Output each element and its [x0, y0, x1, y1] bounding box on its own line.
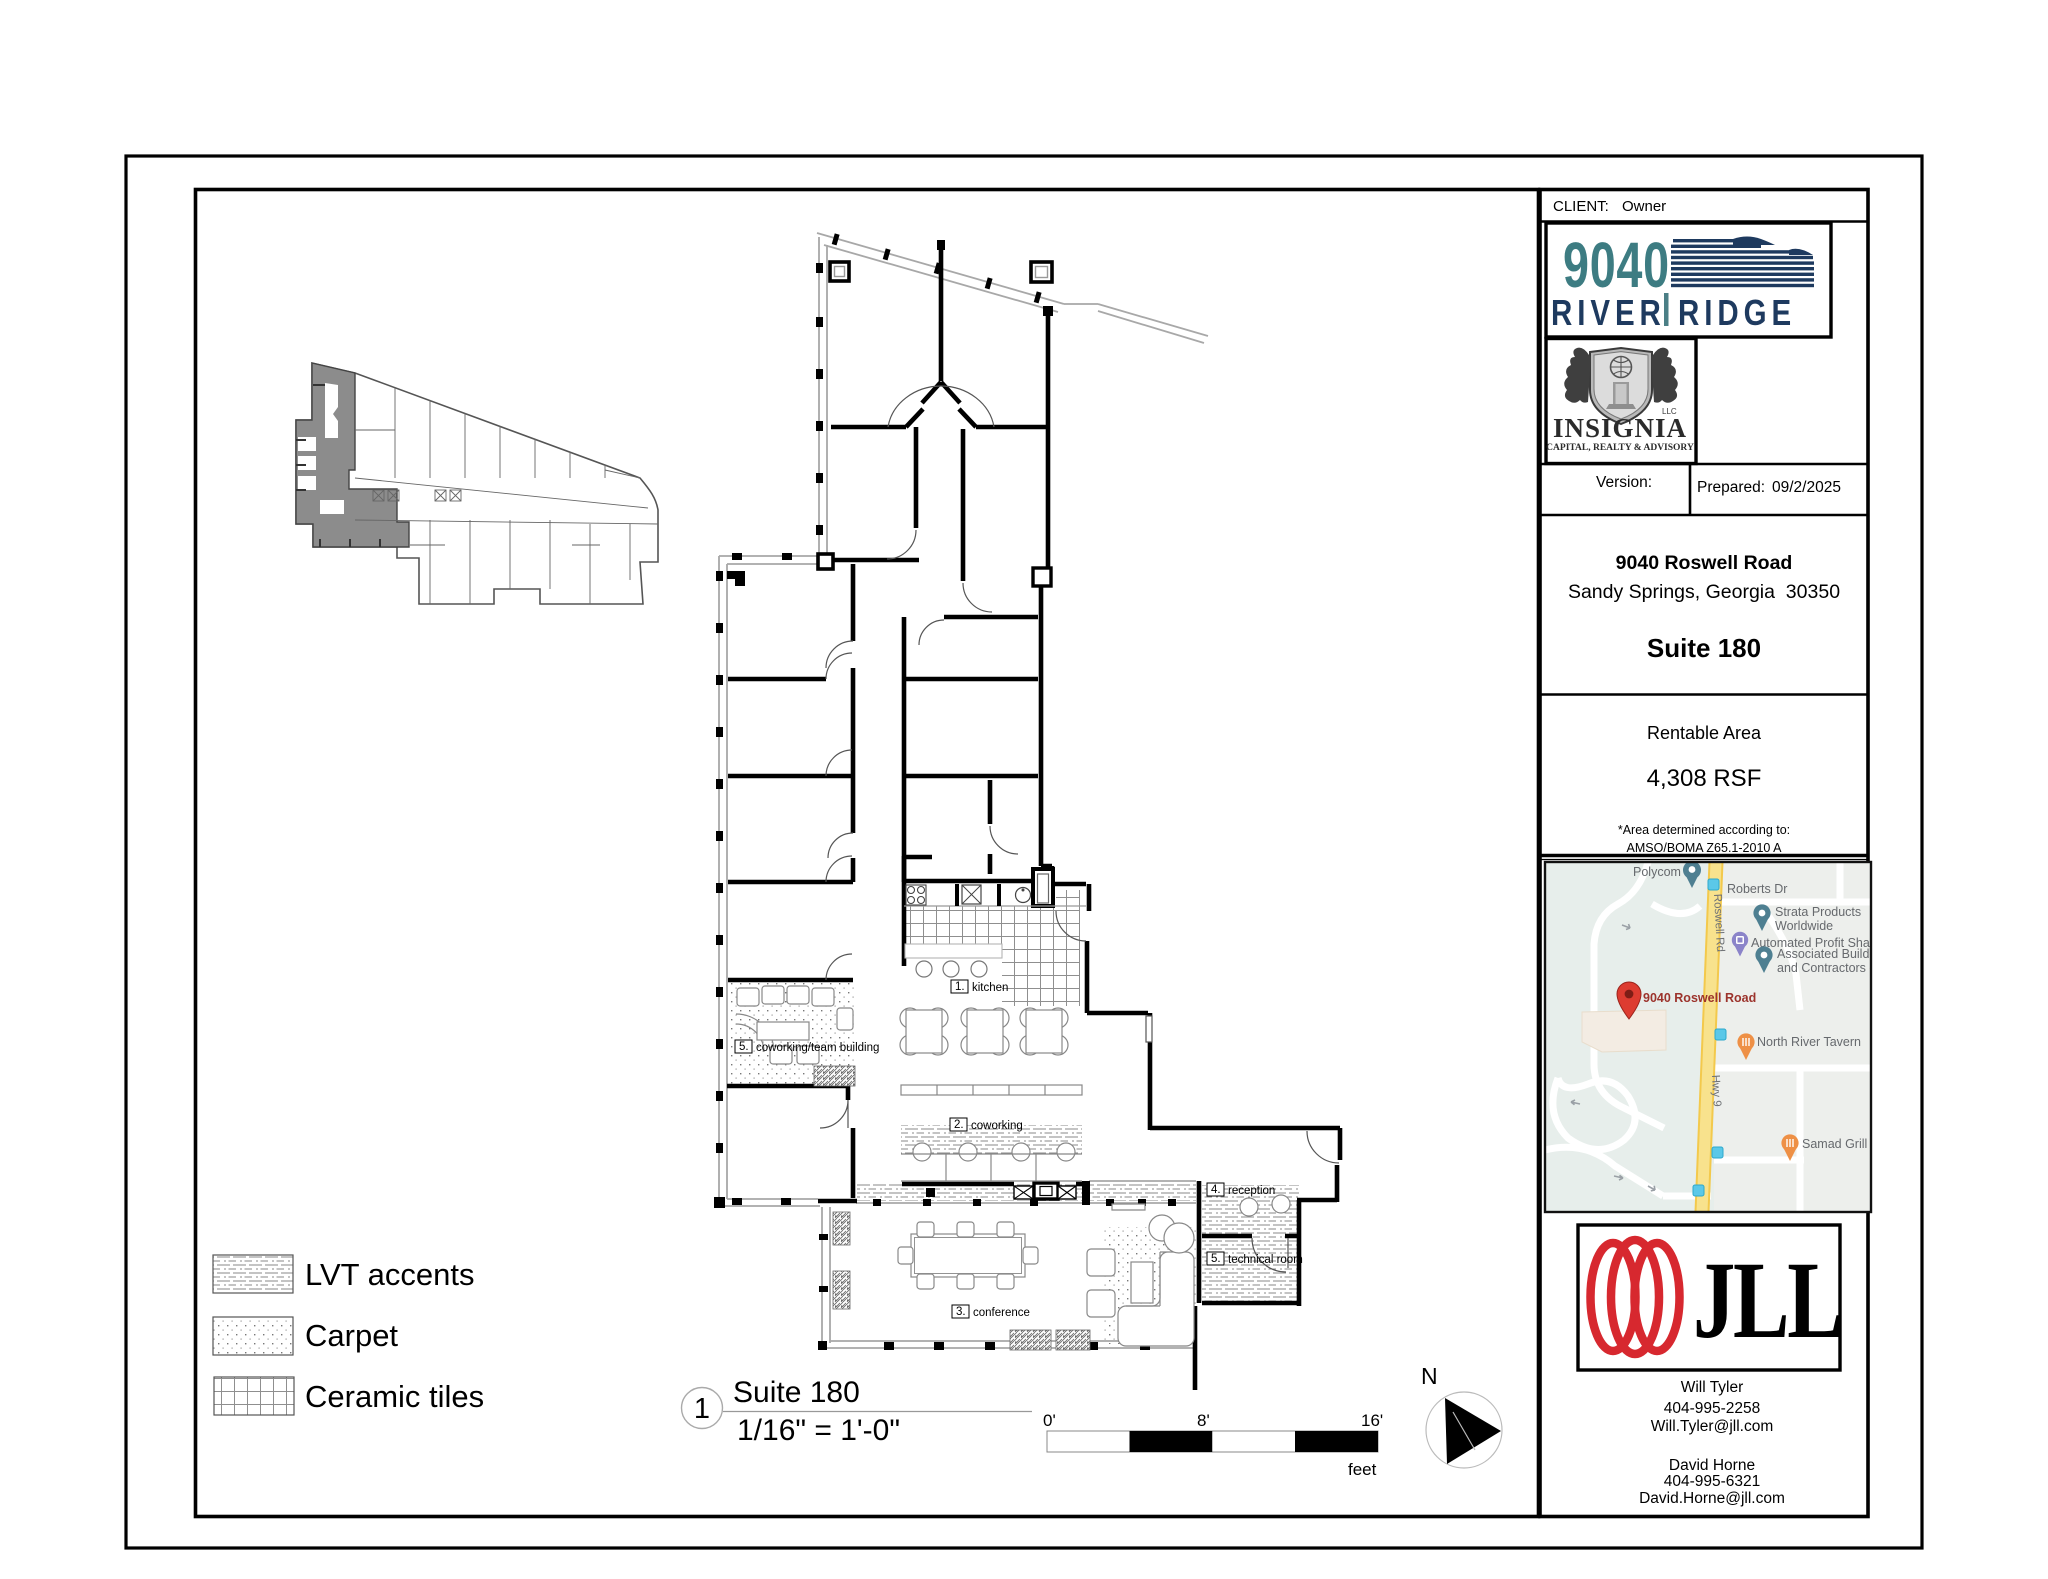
svg-text:reception: reception [1228, 1185, 1275, 1197]
svg-text:coworking/team building: coworking/team building [756, 1042, 879, 1054]
svg-text:Ceramic tiles: Ceramic tiles [305, 1379, 484, 1414]
svg-text:404-995-6321: 404-995-6321 [1664, 1473, 1761, 1490]
svg-text:4,308 RSF: 4,308 RSF [1647, 765, 1762, 792]
svg-text:Associated Builde: Associated Builde [1777, 947, 1876, 961]
svg-text:1/16" = 1'-0": 1/16" = 1'-0" [737, 1414, 900, 1447]
svg-text:LVT accents: LVT accents [305, 1257, 474, 1292]
svg-text:Hwy 9: Hwy 9 [1709, 1075, 1723, 1108]
svg-text:RIDGE: RIDGE [1678, 292, 1796, 332]
svg-text:1: 1 [694, 1393, 710, 1425]
svg-text:Will Tyler: Will Tyler [1681, 1379, 1744, 1396]
svg-text:9040 Roswell Road: 9040 Roswell Road [1616, 552, 1793, 574]
svg-text:*Area determined according to:: *Area determined according to: [1618, 823, 1790, 837]
svg-text:North River Tavern: North River Tavern [1757, 1035, 1861, 1049]
svg-text:Strata Products: Strata Products [1775, 905, 1861, 919]
svg-text:CAPITAL, REALTY & ADVISORY: CAPITAL, REALTY & ADVISORY [1546, 443, 1694, 453]
svg-text:5.: 5. [739, 1041, 749, 1053]
svg-text:3.: 3. [956, 1306, 966, 1318]
svg-text:2.: 2. [954, 1119, 964, 1131]
svg-text:technical room: technical room [1228, 1254, 1303, 1266]
svg-text:16': 16' [1361, 1411, 1383, 1430]
svg-text:Carpet: Carpet [305, 1318, 398, 1353]
svg-text:David Horne: David Horne [1669, 1457, 1755, 1474]
svg-text:conference: conference [973, 1307, 1030, 1319]
svg-text:Samad Grill: Samad Grill [1802, 1137, 1867, 1151]
svg-text:Sandy Springs, Georgia 30350: Sandy Springs, Georgia 30350 [1568, 581, 1840, 603]
svg-text:Rentable Area: Rentable Area [1647, 723, 1762, 743]
svg-text:09/2/2025: 09/2/2025 [1772, 479, 1841, 496]
svg-text:4.: 4. [1211, 1184, 1221, 1196]
svg-text:Polycom: Polycom [1633, 865, 1681, 879]
svg-text:404-995-2258: 404-995-2258 [1664, 1400, 1761, 1417]
svg-text:Worldwide: Worldwide [1775, 919, 1833, 933]
svg-text:N: N [1421, 1363, 1438, 1389]
svg-text:5.: 5. [1211, 1253, 1221, 1265]
svg-text:Will.Tyler@jll.com: Will.Tyler@jll.com [1651, 1418, 1774, 1435]
svg-text:Suite 180: Suite 180 [733, 1376, 860, 1409]
svg-text:0': 0' [1043, 1411, 1056, 1430]
svg-text:9040: 9040 [1563, 229, 1670, 301]
svg-text:and Contractors o: and Contractors o [1777, 961, 1876, 975]
svg-text:feet: feet [1348, 1460, 1377, 1479]
svg-text:INSIGNIA: INSIGNIA [1553, 413, 1687, 443]
svg-text:kitchen: kitchen [972, 982, 1008, 994]
svg-text:AMSO/BOMA Z65.1-2010 A: AMSO/BOMA Z65.1-2010 A [1627, 841, 1783, 855]
svg-text:Version:: Version: [1596, 474, 1652, 491]
svg-text:David.Horne@jll.com: David.Horne@jll.com [1639, 1490, 1785, 1507]
svg-text:9040 Roswell Road: 9040 Roswell Road [1643, 991, 1756, 1005]
svg-text:8': 8' [1197, 1411, 1210, 1430]
svg-text:Roberts Dr: Roberts Dr [1727, 882, 1787, 896]
svg-text:coworking: coworking [971, 1120, 1023, 1132]
svg-text:Suite 180: Suite 180 [1647, 633, 1761, 663]
svg-text:Prepared:: Prepared: [1697, 479, 1765, 496]
svg-text:JLL: JLL [1693, 1241, 1841, 1362]
svg-text:CLIENT:: CLIENT: [1553, 198, 1609, 215]
svg-text:1.: 1. [955, 981, 965, 993]
svg-text:Owner: Owner [1622, 198, 1666, 215]
svg-text:RIVER: RIVER [1551, 292, 1666, 332]
